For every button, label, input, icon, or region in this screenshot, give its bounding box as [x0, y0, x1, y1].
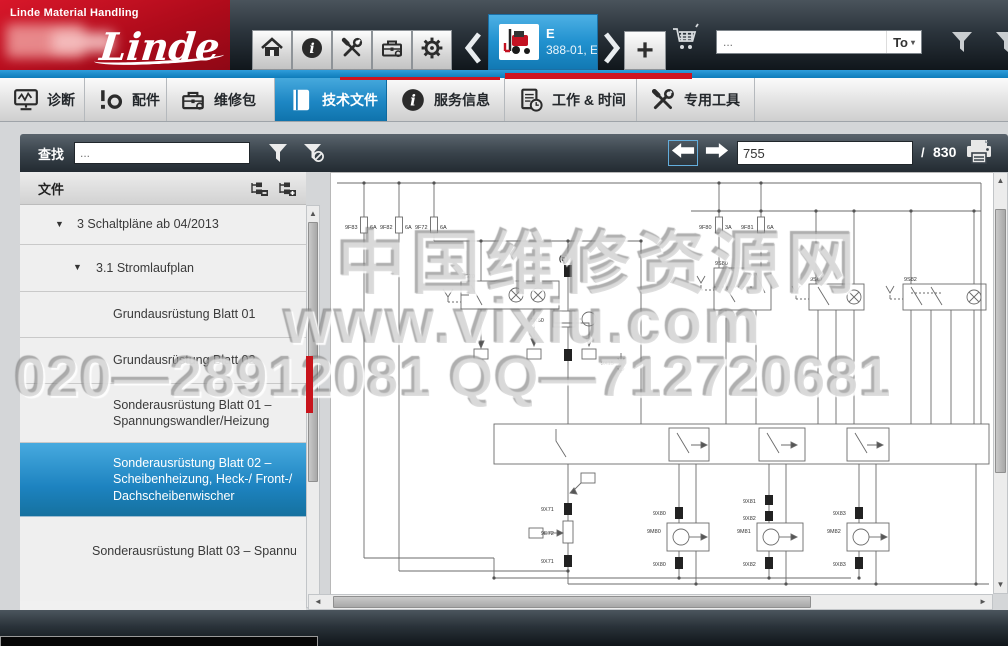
apply-filter-button[interactable] [266, 141, 290, 165]
tree-header: 文件 [20, 172, 306, 205]
filter-secondary-button[interactable] [994, 30, 1008, 56]
tree-item-grundausruestung-01[interactable]: Grundausrüstung Blatt 01 [20, 292, 306, 338]
diagram-label: 9E72 [541, 531, 554, 537]
diagram-label: 9X71 [541, 559, 554, 565]
scrollbar-thumb[interactable] [308, 222, 318, 482]
scroll-up-icon[interactable]: ▲ [307, 207, 319, 221]
funnel-off-icon [302, 152, 326, 169]
scroll-right-icon[interactable]: ► [976, 595, 990, 609]
monitor-icon [13, 87, 39, 113]
diagram-label: 9X15 [601, 361, 614, 367]
diagram-label: 9S80 [715, 261, 728, 267]
red-marker [505, 73, 692, 79]
forklift-thumbnail [499, 24, 539, 60]
info-button[interactable]: i [292, 30, 332, 70]
diagram-label: 6A [370, 225, 377, 231]
cart-icon [670, 22, 700, 59]
truck-model: E [546, 26, 598, 42]
scroll-up-icon[interactable]: ▲ [994, 174, 1007, 188]
diagram-label: 9F82 [380, 225, 393, 231]
tab-label: 维修包 [214, 90, 256, 110]
scroll-down-icon[interactable]: ▼ [994, 578, 1007, 592]
info-icon: i [400, 87, 426, 113]
home-button[interactable] [252, 30, 292, 70]
tree-item-label: Sonderausrüstung Blatt 02 – Scheibenheiz… [20, 455, 298, 504]
diagram-label: 9S81 [810, 277, 823, 283]
accent-strip [0, 70, 1008, 78]
tab-diagnosis[interactable]: 诊断 [0, 78, 85, 121]
funnel-icon [950, 43, 974, 60]
book-icon [288, 87, 314, 113]
add-truck-button[interactable]: + [624, 31, 666, 70]
global-search-input[interactable] [717, 35, 886, 49]
diagram-label: 9F81 [741, 225, 754, 231]
toolbox-icon [380, 36, 404, 65]
tree-item-sonderausruestung-03[interactable]: Sonderausrüstung Blatt 03 – Spannungswan… [20, 517, 306, 601]
tab-label: 配件 [132, 90, 160, 110]
diagram-label: 9X82 [743, 516, 756, 522]
tree-item-label: Grundausrüstung Blatt 01 [20, 306, 305, 322]
tree-item-label: 3 Schaltpläne ab 04/2013 [20, 216, 219, 232]
tab-work-time[interactable]: 工作 & 时间 [505, 78, 637, 121]
tree-item-sonderausruestung-02-selected[interactable]: Sonderausrüstung Blatt 02 – Scheibenheiz… [20, 443, 306, 517]
diagram-label: 9X83 [833, 511, 846, 517]
selected-truck-tab[interactable]: E 388-01, E3 [488, 14, 598, 70]
diagram-horizontal-scrollbar[interactable]: ◄ ► [308, 594, 993, 610]
collapse-all-button[interactable] [248, 179, 270, 197]
previous-page-button[interactable] [668, 140, 698, 166]
diagram-label: 9M80 [647, 529, 661, 535]
diagram-label: 9X80 [653, 562, 666, 568]
page-separator: / [921, 145, 925, 160]
diagram-vertical-scrollbar[interactable]: ▲ ▼ [993, 172, 1008, 594]
diagram-label: 6A [440, 225, 447, 231]
chevron-down-icon: ▾ [911, 38, 915, 47]
diagram-label: 9X82 [743, 562, 756, 568]
tree-item-label: Sonderausrüstung Blatt 03 – Spannungswan… [20, 543, 296, 559]
chevron-down-icon[interactable]: ▼ [73, 262, 82, 274]
cart-button[interactable] [668, 22, 702, 58]
filter-button[interactable] [950, 30, 974, 56]
diagram-label: 9S70 [462, 274, 475, 280]
wiring-diagram-viewport[interactable]: 9F83 6A 9F82 6A 9F72 6A 9S70 (a) 9K60 9X… [330, 172, 993, 594]
arrow-left-icon [671, 142, 695, 164]
tree-item-grundausruestung-02[interactable]: Grundausrüstung Blatt 02 [20, 338, 306, 384]
truck-label: E 388-01, E3 [546, 26, 598, 57]
page-number-input[interactable] [737, 141, 913, 165]
truck-next-button[interactable] [600, 31, 624, 69]
chevron-down-icon[interactable]: ▼ [55, 219, 64, 231]
find-label: 查找 [38, 144, 64, 163]
brand-line: Linde Material Handling [10, 7, 139, 19]
tools-button[interactable] [332, 30, 372, 70]
diagram-label: 6A [767, 225, 774, 231]
find-input[interactable] [74, 142, 250, 164]
tree-item-stromlaufplan[interactable]: ▼ 3.1 Stromlaufplan [20, 245, 306, 292]
document-toolbar: 查找 / 830 [20, 134, 1008, 172]
app-window: Linde Material Handling Linde i [0, 0, 1008, 646]
next-page-button[interactable] [702, 140, 732, 166]
scroll-left-icon[interactable]: ◄ [311, 595, 325, 609]
chevron-right-icon [602, 31, 622, 70]
parts-icon [98, 87, 124, 113]
diagram-label: 9X80 [653, 511, 666, 517]
diagram-label: 9F80 [699, 225, 712, 231]
tab-service-info[interactable]: i 服务信息 [387, 78, 505, 121]
tab-parts[interactable]: 配件 [85, 78, 167, 121]
search-scope-dropdown[interactable]: To ▾ [886, 31, 921, 53]
tree-item-sonderausruestung-01[interactable]: Sonderausrüstung Blatt 01 – Spannungswan… [20, 384, 306, 443]
diagram-label: 9F72 [415, 225, 428, 231]
printer-icon [964, 154, 994, 171]
diagram-label: (a) [559, 254, 569, 263]
red-stripe-marker [306, 356, 313, 413]
info-icon: i [300, 36, 324, 65]
tree-item-label: Sonderausrüstung Blatt 01 – Spannungswan… [20, 397, 303, 430]
red-marker [340, 77, 500, 80]
diagram-label: 9X71 [541, 507, 554, 513]
home-icon [260, 36, 284, 65]
tree-title: 文件 [38, 179, 242, 198]
wrench-screwdriver-icon [340, 36, 364, 65]
linde-logo-block: Linde Material Handling Linde [0, 0, 230, 70]
tab-repair-kits[interactable]: 维修包 [167, 78, 275, 121]
wrench-screwdriver-icon [650, 87, 676, 113]
gear-icon [420, 36, 444, 65]
diagram-label: 9M82 [827, 529, 841, 535]
tree-item-schaltplaene[interactable]: ▼ 3 Schaltpläne ab 04/2013 [20, 205, 306, 245]
diagram-label: 9X83 [833, 562, 846, 568]
settings-button[interactable] [412, 30, 452, 70]
document-tree-panel: 文件 ▼ 3 Schaltpläne ab 04/2013 ▼ 3.1 Stro… [20, 172, 306, 610]
svg-text:i: i [309, 41, 314, 57]
scrollbar-thumb[interactable] [995, 209, 1006, 473]
scrollbar-thumb[interactable] [333, 596, 811, 608]
svg-text:i: i [410, 91, 416, 109]
page-total: 830 [933, 144, 956, 160]
diagram-label: 9M81 [737, 529, 751, 535]
global-search-box: To ▾ [716, 30, 922, 54]
truck-prev-button[interactable] [461, 31, 485, 69]
diagram-label: 9S82 [904, 277, 917, 283]
clear-filter-button[interactable] [302, 141, 326, 165]
diagram-label: 6A [405, 225, 412, 231]
arrow-right-icon [705, 142, 729, 164]
tree-item-label: 3.1 Stromlaufplan [20, 260, 194, 276]
truck-detail: 388-01, E3 [546, 43, 598, 58]
diagram-label: 9X81 [743, 499, 756, 505]
print-button[interactable] [964, 139, 994, 167]
tab-label: 服务信息 [434, 90, 490, 110]
funnel-icon [994, 43, 1008, 60]
chevron-left-icon [463, 31, 483, 70]
tab-technical-documents[interactable]: 技术文件 [275, 78, 387, 121]
taskbar-fragment [0, 636, 318, 646]
tab-label: 技术文件 [322, 90, 378, 110]
linde-logo: Linde [98, 28, 222, 66]
search-scope-value: To [893, 35, 908, 50]
diagram-label: 9K60 [531, 318, 544, 324]
tab-label: 专用工具 [684, 90, 740, 110]
tab-label: 诊断 [47, 90, 75, 110]
diagram-label: 3A [725, 225, 732, 231]
tab-special-tools[interactable]: 专用工具 [637, 78, 755, 121]
clipboard-clock-icon [518, 87, 544, 113]
tree-item-label: Grundausrüstung Blatt 02 [20, 352, 305, 368]
expand-all-button[interactable] [276, 179, 298, 197]
funnel-icon [266, 152, 290, 169]
toolbox-button[interactable] [372, 30, 412, 70]
header-bar: Linde Material Handling Linde i [0, 0, 1008, 70]
diagram-label: 9F83 [345, 225, 358, 231]
wiring-diagram: 9F83 6A 9F82 6A 9F72 6A 9S70 (a) 9K60 9X… [331, 173, 992, 593]
module-tabbar: 诊断 配件 维修包 技术文件 i 服务信息 [0, 78, 1008, 122]
tab-label: 工作 & 时间 [552, 90, 626, 110]
toolbox-icon [180, 87, 206, 113]
